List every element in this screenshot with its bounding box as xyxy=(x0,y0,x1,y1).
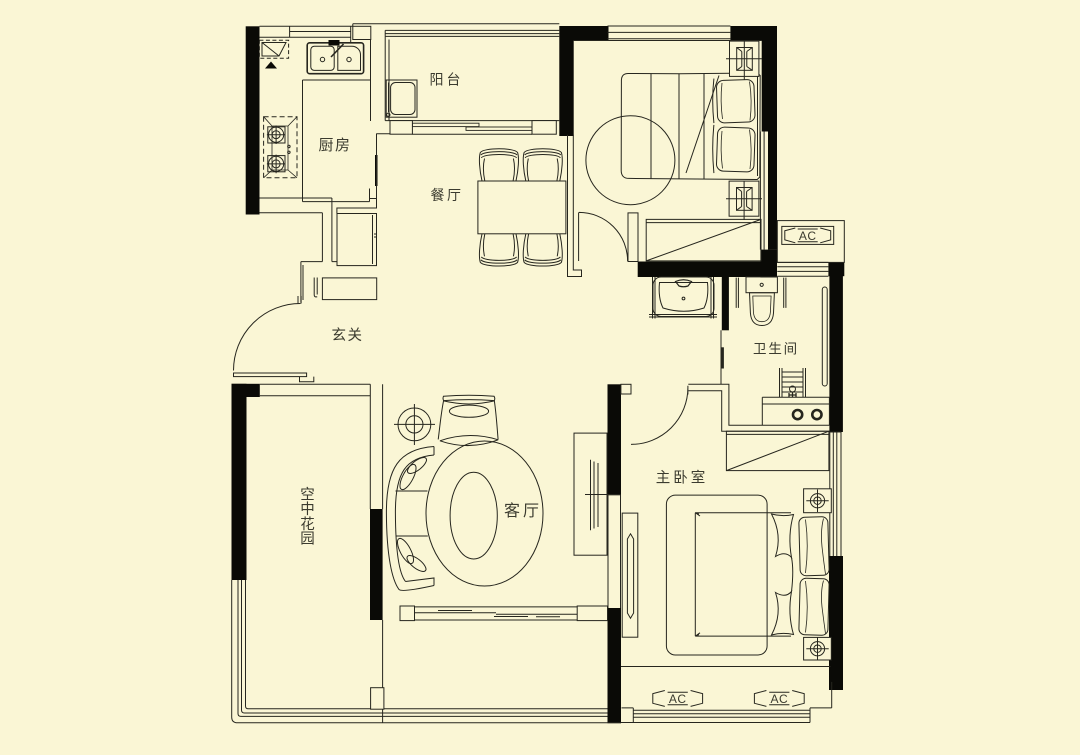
svg-text:厨房: 厨房 xyxy=(318,137,351,154)
svg-text:阳台: 阳台 xyxy=(430,72,464,88)
svg-text:玄关: 玄关 xyxy=(332,327,364,344)
svg-text:餐厅: 餐厅 xyxy=(431,187,464,203)
svg-text:主卧室: 主卧室 xyxy=(656,470,709,487)
svg-text:AC: AC xyxy=(799,229,817,243)
svg-text:AC: AC xyxy=(770,692,788,706)
svg-text:卫生间: 卫生间 xyxy=(753,342,799,357)
svg-text:客厅: 客厅 xyxy=(504,502,542,520)
svg-text:AC: AC xyxy=(669,692,687,706)
svg-text:空中花园: 空中花园 xyxy=(300,487,315,548)
